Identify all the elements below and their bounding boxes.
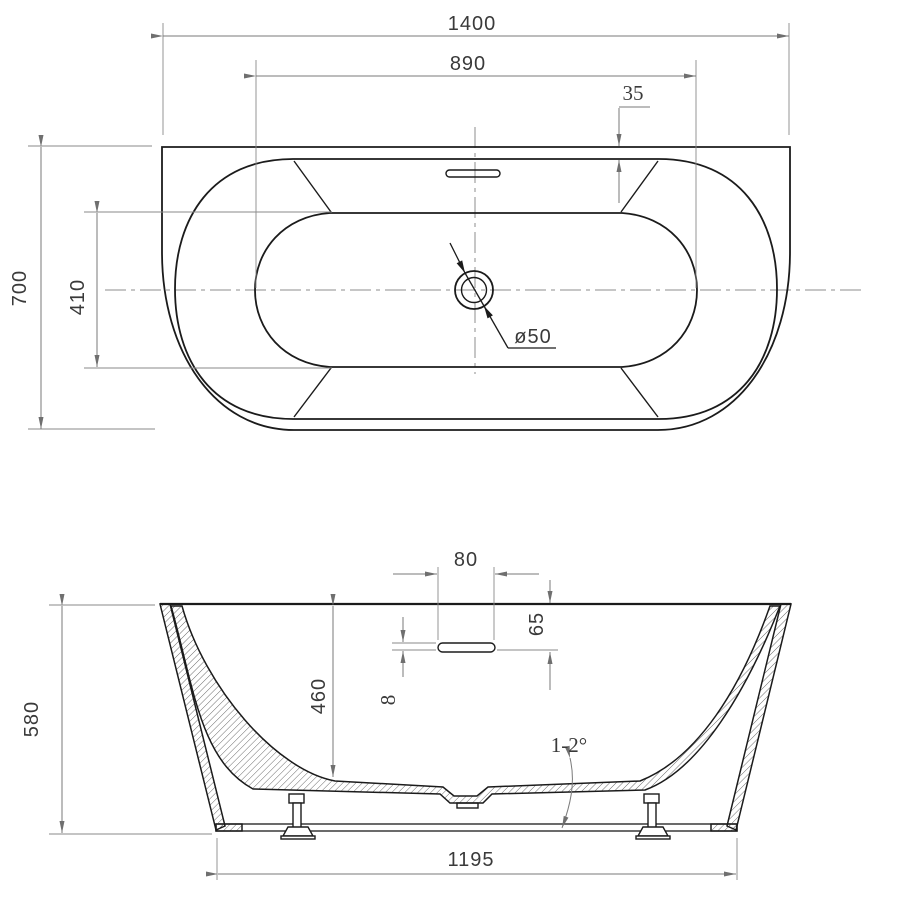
right-foot [636, 794, 670, 839]
dim-back-rim-label: 35 [623, 81, 644, 105]
dim-overflow-width: 80 [393, 549, 539, 640]
dim-overflow-width-label: 80 [454, 549, 478, 571]
corner-edge-top-right [621, 161, 658, 212]
side-view: 80 65 8 460 580 [21, 549, 791, 880]
dim-slot-height: 8 [376, 617, 436, 705]
dim-basin-width-label: 890 [450, 53, 486, 75]
drain-diameter-label: ø50 [514, 326, 551, 348]
dim-basin-depth-label: 410 [67, 279, 89, 315]
floor-slope-label: 1-2° [551, 733, 587, 757]
dim-slot-height-label: 8 [376, 695, 400, 706]
drawing-canvas: ø50 1400 890 35 700 [0, 0, 899, 900]
left-foot [281, 794, 315, 839]
corner-edge-bottom-right [621, 368, 658, 417]
floor-slope-note: 1-2° [551, 733, 587, 828]
corner-edge-top-left [294, 161, 331, 212]
dim-overall-width-label: 1400 [448, 13, 497, 35]
bathtub-technical-drawing: ø50 1400 890 35 700 [0, 0, 899, 900]
top-view: ø50 1400 890 35 700 [9, 13, 862, 430]
corner-edge-bottom-left [294, 368, 331, 417]
dim-base-length-label: 1195 [447, 849, 494, 871]
drain-leader: ø50 [450, 243, 556, 348]
dim-base-length: 1195 [217, 838, 737, 880]
dim-inner-depth: 460 [308, 606, 333, 777]
overflow-slot-top [446, 170, 500, 177]
dim-overflow-offset-label: 65 [526, 612, 548, 636]
tub-rim-inner-edge [175, 159, 777, 419]
dim-back-rim: 35 [619, 81, 650, 203]
shell-section [171, 606, 780, 803]
dim-overflow-offset: 65 [497, 580, 558, 690]
dim-overall-height-label: 580 [21, 701, 43, 737]
dim-overall-depth-label: 700 [9, 270, 31, 306]
dim-inner-depth-label: 460 [308, 678, 330, 714]
overflow-slot-side [438, 643, 495, 652]
